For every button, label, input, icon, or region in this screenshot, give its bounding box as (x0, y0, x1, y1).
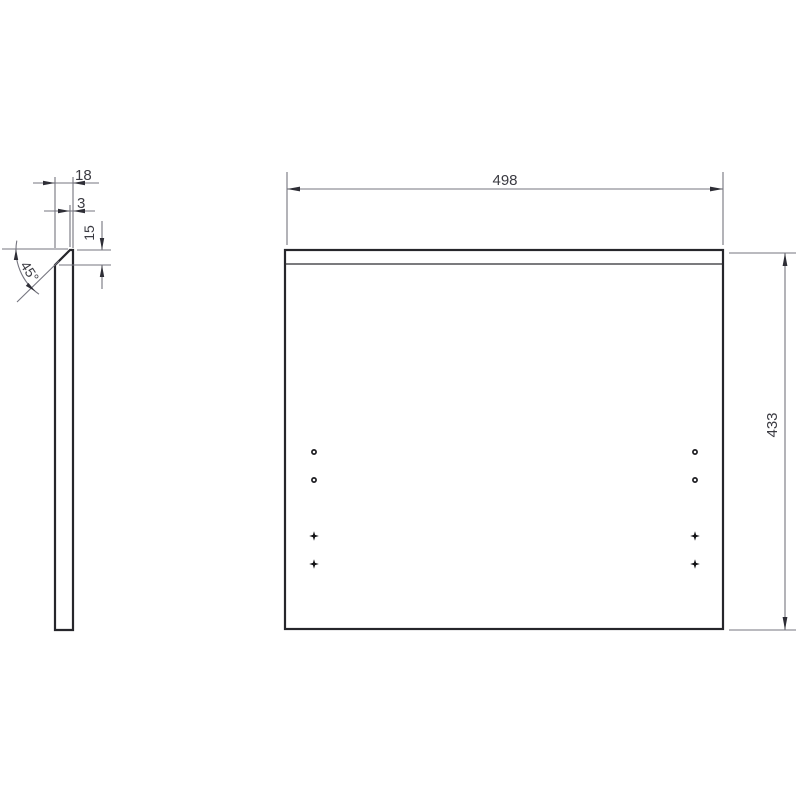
dimension-chamfer-height: 15 (59, 221, 111, 289)
drawing-canvas: 18 3 15 45° (0, 0, 800, 800)
arrowhead (783, 617, 788, 630)
hole-point (312, 450, 316, 454)
arrowhead (783, 253, 788, 266)
arrowhead (287, 187, 300, 192)
center-mark (309, 559, 319, 569)
technical-drawing: 18 3 15 45° (0, 0, 800, 800)
front-view-outline (285, 250, 723, 629)
arrowhead (43, 181, 55, 185)
dimension-height: 433 (729, 253, 796, 630)
arrowhead (58, 209, 70, 213)
dimension-text-top-face: 3 (77, 195, 85, 212)
dimension-text-thickness: 18 (75, 167, 92, 184)
front-view (285, 250, 723, 629)
dimension-text-chamfer-height: 15 (81, 225, 97, 241)
side-view-outline (55, 250, 73, 630)
arrowhead (14, 249, 18, 260)
arrowhead (26, 283, 36, 292)
hole-point (693, 478, 697, 482)
hole-point (312, 478, 316, 482)
dimension-width: 498 (287, 172, 723, 245)
center-mark (690, 531, 700, 541)
arrowhead (100, 265, 104, 277)
side-view (55, 250, 73, 630)
hole-point (693, 450, 697, 454)
arrowhead (100, 238, 104, 250)
dimension-text-height: 433 (764, 412, 781, 437)
dimension-chamfer-angle: 45° (2, 241, 68, 302)
center-mark (690, 559, 700, 569)
center-mark (309, 531, 319, 541)
arrowhead (710, 187, 723, 192)
dimension-text-width: 498 (492, 172, 517, 189)
